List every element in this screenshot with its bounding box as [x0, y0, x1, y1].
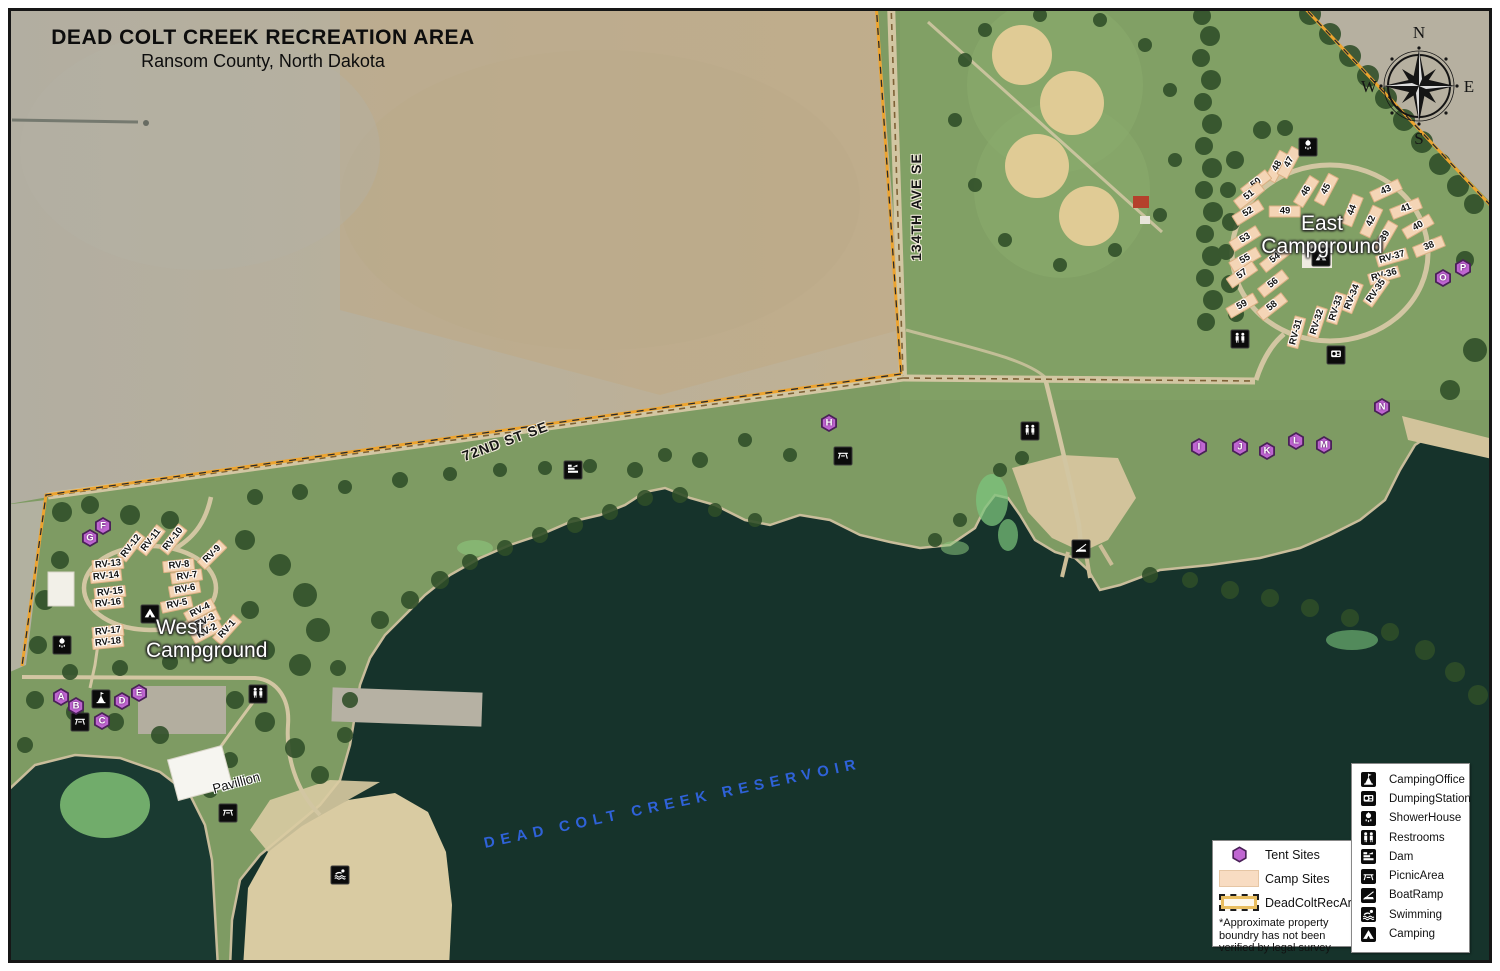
tent-site-marker-M: M — [1315, 436, 1334, 455]
west-campground-label: West Campground — [146, 617, 267, 662]
legend-row-shower-house: ShowerHouse — [1352, 809, 1469, 828]
picnic-area-icon — [1361, 869, 1376, 884]
icons-legend: CampingOfficeDumpingStationShowerHouseRe… — [1351, 763, 1470, 953]
map-world: DEAD COLT CREEK RECREATION AREA Ransom C… — [11, 11, 1489, 960]
map-page: DEAD COLT CREEK RECREATION AREA Ransom C… — [0, 0, 1500, 971]
compass-s: S — [1414, 129, 1423, 148]
compass-rose: N E S W — [1358, 22, 1480, 153]
legend-label: Dam — [1389, 851, 1413, 863]
legend-label: Restrooms — [1389, 832, 1445, 844]
picnic-area-icon — [834, 447, 853, 466]
legend-label: BoatRamp — [1389, 889, 1443, 901]
tent-site-marker-J: J — [1231, 438, 1250, 457]
legend-row-camping: Camping — [1352, 924, 1469, 943]
compass-n: N — [1413, 23, 1425, 42]
shower-house-icon — [1299, 138, 1318, 157]
restrooms-icon — [249, 685, 268, 704]
dam-icon — [564, 461, 583, 480]
legend-label: Tent Sites — [1265, 848, 1320, 862]
ball-diamond — [992, 25, 1052, 85]
legend-row-camping-office: CampingOffice — [1352, 770, 1469, 789]
tent-site-marker-O: O — [1434, 269, 1453, 288]
legend-label: Camp Sites — [1265, 872, 1330, 886]
east-campground-line1: East — [1261, 213, 1382, 236]
legend-label: Camping — [1389, 928, 1435, 940]
legend-row-swimming: Swimming — [1352, 905, 1469, 924]
legend-row-picnic-area: PicnicArea — [1352, 866, 1469, 885]
west-campground-line1: West — [156, 617, 267, 640]
ball-diamond — [1040, 71, 1104, 135]
tent-site-marker-K: K — [1258, 442, 1277, 461]
tent-site-marker-G: G — [81, 529, 100, 548]
map-title-line1: DEAD COLT CREEK RECREATION AREA — [48, 26, 478, 50]
ball-diamond — [1005, 134, 1069, 198]
legend-row-dumping-station: DumpingStation — [1352, 789, 1469, 808]
camping-office-icon — [1361, 772, 1376, 787]
tent-site-marker-I: I — [1190, 438, 1209, 457]
shower-house-icon — [53, 636, 72, 655]
tent-site-marker-E: E — [130, 684, 149, 703]
road-label: 134TH AVE SE — [908, 153, 924, 261]
legend-row-dam: Dam — [1352, 847, 1469, 866]
tent-site-marker-P: P — [1454, 259, 1473, 278]
restrooms-icon — [1231, 330, 1250, 349]
west-campground-line2: Campground — [146, 640, 267, 663]
tent-site-marker-C: C — [93, 712, 112, 731]
legend-label: ShowerHouse — [1389, 812, 1461, 824]
compass-e: E — [1464, 77, 1474, 96]
campsite-label: RV-14 — [92, 569, 119, 583]
tent-site-marker-H: H — [820, 414, 839, 433]
sites-legend-rows: Tent SitesCamp SitesDeadColtRecArea* — [1213, 844, 1352, 913]
shower-building — [48, 572, 74, 606]
east-campground-label: East Campground — [1261, 213, 1382, 258]
restrooms-icon — [1021, 422, 1040, 441]
legend-row-boat-ramp: BoatRamp — [1352, 886, 1469, 905]
ball-diamond — [1059, 186, 1119, 246]
sites-legend: Tent SitesCamp SitesDeadColtRecArea* *Ap… — [1212, 840, 1353, 947]
tent-site-marker-L: L — [1287, 432, 1306, 451]
boat-ramp-icon — [1361, 888, 1376, 903]
boundary-swatch — [1219, 894, 1259, 911]
map-title-line2: Ransom County, North Dakota — [48, 51, 478, 72]
legend-label: DumpingStation — [1389, 793, 1471, 805]
red-building — [1133, 196, 1149, 208]
dumping-station-icon — [1361, 791, 1376, 806]
tent-site-marker-N: N — [1373, 398, 1392, 417]
legend-label: Swimming — [1389, 909, 1442, 921]
camp-sites-swatch — [1219, 870, 1259, 887]
map-title: DEAD COLT CREEK RECREATION AREA Ransom C… — [48, 26, 478, 72]
campsite-label: RV-18 — [94, 635, 121, 649]
east-campground-line2: Campground — [1261, 236, 1382, 259]
shower-house-icon — [1361, 811, 1376, 826]
swimming-icon — [1361, 907, 1376, 922]
campsite-label: RV-16 — [94, 596, 121, 610]
camping-office-icon — [92, 690, 111, 709]
parking-lot — [138, 686, 226, 734]
legend-note: *Approximate property boundry has not be… — [1219, 917, 1352, 955]
dam-icon — [1361, 849, 1376, 864]
legend-label: CampingOffice — [1389, 774, 1465, 786]
boat-ramp-icon — [1072, 540, 1091, 559]
restrooms-icon — [1361, 830, 1376, 845]
jetty — [12, 120, 138, 122]
legend-row-hex: Tent Sites — [1213, 844, 1352, 865]
legend-row-boundary: DeadColtRecArea* — [1213, 892, 1352, 913]
legend-row-restrooms: Restrooms — [1352, 828, 1469, 847]
map-viewport: DEAD COLT CREEK RECREATION AREA Ransom C… — [11, 11, 1489, 960]
legend-label: PicnicArea — [1389, 870, 1444, 882]
picnic-area-icon — [219, 804, 238, 823]
compass-w: W — [1361, 77, 1378, 96]
legend-row-camp: Camp Sites — [1213, 868, 1352, 889]
swimming-icon — [331, 866, 350, 885]
tent-site-marker-B: B — [67, 697, 86, 716]
dumping-station-icon — [1327, 346, 1346, 365]
camping-icon — [1361, 927, 1376, 942]
icons-legend-rows: CampingOfficeDumpingStationShowerHouseRe… — [1352, 770, 1469, 944]
